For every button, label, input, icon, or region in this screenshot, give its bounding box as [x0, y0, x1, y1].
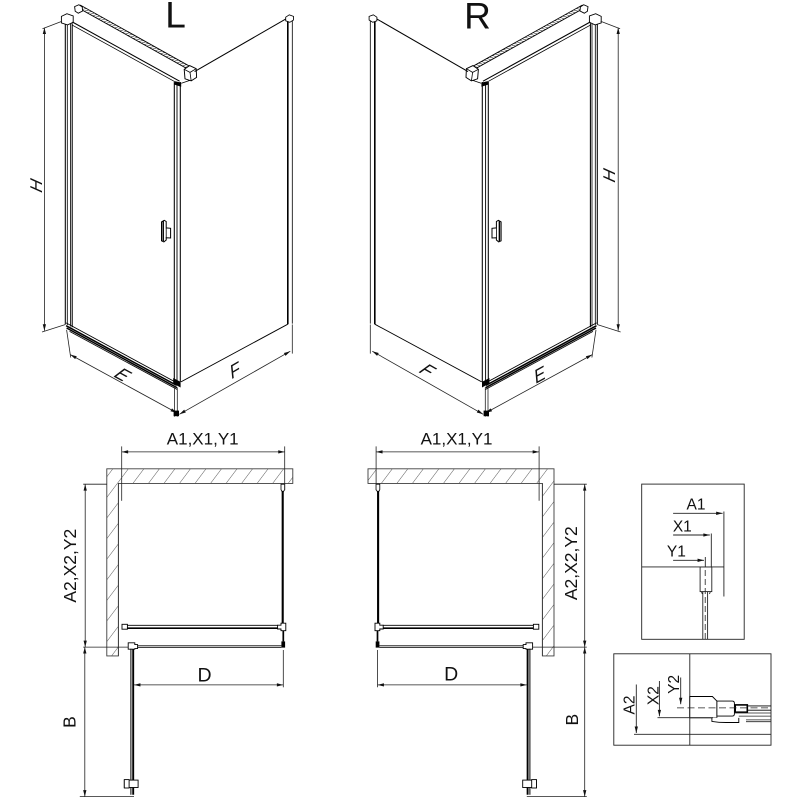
svg-text:R: R	[464, 0, 491, 37]
svg-text:H: H	[600, 165, 619, 186]
svg-text:D: D	[444, 664, 458, 686]
svg-text:D: D	[197, 665, 211, 687]
svg-text:B: B	[60, 716, 80, 728]
svg-text:L: L	[165, 0, 186, 36]
svg-text:A2,X2,Y2: A2,X2,Y2	[561, 526, 581, 600]
svg-text:Y1: Y1	[667, 544, 686, 561]
svg-text:A1: A1	[687, 497, 706, 514]
svg-text:B: B	[562, 714, 582, 726]
svg-text:A2,X2,Y2: A2,X2,Y2	[60, 529, 80, 603]
svg-text:F: F	[229, 357, 241, 384]
svg-text:F: F	[414, 361, 441, 379]
svg-text:A2: A2	[622, 696, 639, 715]
svg-text:Y2: Y2	[666, 675, 683, 694]
svg-text:A1,X1,Y1: A1,X1,Y1	[167, 429, 239, 448]
svg-text:A1,X1,Y1: A1,X1,Y1	[421, 429, 493, 448]
svg-text:X1: X1	[673, 518, 692, 535]
svg-text:E: E	[534, 361, 546, 389]
svg-text:E: E	[109, 365, 137, 384]
svg-text:X2: X2	[645, 686, 662, 705]
svg-text:H: H	[27, 175, 46, 196]
